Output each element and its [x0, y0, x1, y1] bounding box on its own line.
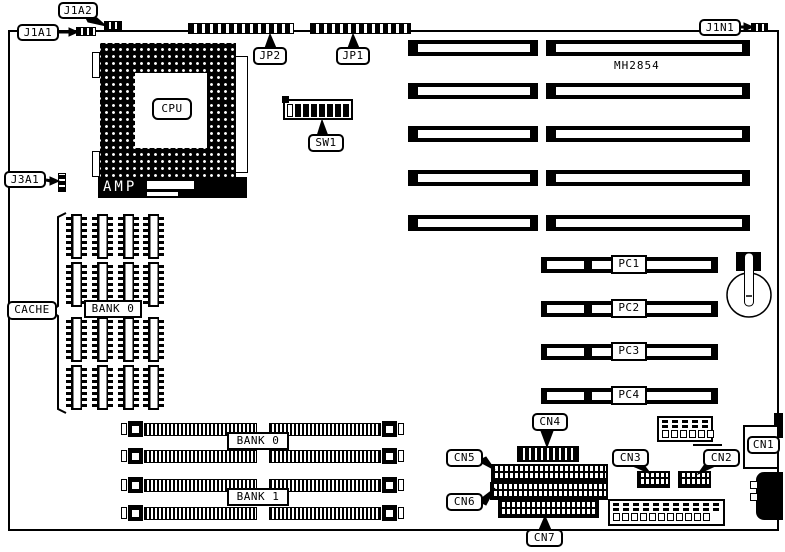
simm-contact-strip	[269, 450, 382, 463]
power-connector-large-pins-mid	[613, 508, 720, 511]
dip-switch-position	[295, 104, 301, 117]
simm-slot	[121, 448, 404, 464]
power-pin	[622, 513, 629, 521]
amp-chip-window-small	[147, 192, 178, 196]
chip-body	[71, 214, 82, 259]
isa-slot-inner	[418, 44, 530, 52]
cpu-tab-top	[92, 52, 100, 78]
isa-slot-inner	[556, 44, 742, 52]
isa-slot-right	[546, 215, 750, 231]
pci-slot-label: PC1	[611, 255, 647, 274]
sw1-dip-switch	[283, 99, 353, 120]
power-pin	[689, 430, 696, 438]
simm-latch-left	[128, 448, 143, 464]
chip-pins-right	[108, 214, 113, 259]
chip-pins-right	[82, 214, 87, 259]
dip-switch-position	[335, 104, 341, 117]
dip-switch-position	[311, 104, 317, 117]
dip-switch-position	[303, 104, 309, 117]
cn2-label: CN2	[703, 449, 740, 467]
cache-chip	[143, 262, 164, 307]
j1n1-label: J1N1	[699, 19, 741, 36]
power-pin	[640, 513, 647, 521]
cn4-label: CN4	[532, 413, 568, 431]
power-pin	[694, 513, 701, 521]
cache-chip	[143, 214, 164, 259]
cache-chip	[143, 317, 164, 362]
power-pin	[613, 513, 620, 521]
chip-pins-right	[108, 365, 113, 410]
chip-body	[71, 317, 82, 362]
j1a1-connector	[76, 27, 96, 36]
chip-body	[148, 214, 159, 259]
simm-latch-right	[382, 448, 397, 464]
jp1-pin-header	[310, 23, 411, 34]
chip-pins-right	[159, 214, 164, 259]
power-connector-small-pin-row	[662, 430, 708, 438]
cn4-connector	[517, 446, 579, 462]
simm-latch-right	[382, 477, 397, 493]
jp2-pin-header	[188, 23, 294, 34]
cn5-connector	[491, 464, 608, 482]
pci-slot-label: PC2	[611, 299, 647, 318]
simm-contact-strip	[144, 450, 257, 463]
simm-slot	[121, 505, 404, 521]
chip-body	[97, 365, 108, 410]
cache-chip	[118, 317, 139, 362]
simm-latch-left	[128, 421, 143, 437]
amp-chip-label: AMP	[103, 179, 137, 195]
cache-chip	[92, 317, 113, 362]
keyboard-din-connector	[756, 472, 783, 520]
power-pin	[658, 513, 665, 521]
chip-pins-right	[159, 317, 164, 362]
simm-bank1-label: BANK 1	[227, 488, 289, 506]
chip-body	[71, 262, 82, 307]
isa-slot-inner	[418, 219, 530, 227]
chip-pins-right	[82, 317, 87, 362]
amp-chip: AMP	[98, 177, 247, 198]
power-pin	[685, 513, 692, 521]
cache-chip	[92, 214, 113, 259]
isa-slot-inner	[556, 87, 742, 95]
keyboard-connector-pin-bottom	[750, 493, 758, 501]
isa-slot-left	[408, 40, 538, 56]
pci-slot: PC3	[541, 344, 718, 360]
cache-bank0-label: BANK 0	[84, 300, 142, 318]
power-connector-small-pins-mid	[662, 425, 708, 428]
isa-slot-left	[408, 170, 538, 186]
power-connector-small-pins-top	[662, 420, 708, 423]
simm-end-tab	[121, 450, 127, 462]
chip-body	[148, 317, 159, 362]
chip-pins-right	[134, 214, 139, 259]
cpu-label: CPU	[152, 98, 192, 120]
isa-slot-right	[546, 40, 750, 56]
j1n1-connector	[751, 23, 768, 32]
keyboard-connector-pin-top	[750, 481, 758, 489]
simm-center-key	[257, 450, 269, 463]
pci-slot: PC4	[541, 388, 718, 404]
isa-slot-inner	[418, 174, 530, 182]
isa-slot-left	[408, 215, 538, 231]
power-pin	[707, 430, 714, 438]
chip-body	[71, 365, 82, 410]
motherboard-diagram: CPU AMP J1A2 J1A1 J1N1 J3A1 JP2 JP1 SW1 …	[0, 0, 785, 552]
chip-pins-right	[159, 365, 164, 410]
cache-chip	[66, 214, 87, 259]
cn3-connector	[637, 471, 670, 488]
cn5-label: CN5	[446, 449, 483, 467]
simm-bank0-label: BANK 0	[227, 432, 289, 450]
isa-slot-inner	[556, 174, 742, 182]
isa-slot-inner	[418, 87, 530, 95]
pci-slot: PC1	[541, 257, 718, 273]
simm-contact-strip	[144, 507, 257, 520]
isa-slot-right	[546, 126, 750, 142]
sw1-label: SW1	[308, 134, 344, 152]
power-pin	[671, 430, 678, 438]
power-pin	[676, 513, 683, 521]
j1a1-label: J1A1	[17, 24, 59, 41]
cache-chip	[118, 365, 139, 410]
simm-end-tab	[398, 479, 404, 491]
simm-end-tab	[121, 423, 127, 435]
isa-slot-left	[408, 83, 538, 99]
j1a2-connector	[104, 21, 122, 30]
sw1-pin1-marker	[282, 96, 289, 103]
pci-slot-label: PC4	[611, 386, 647, 405]
dip-switch-position	[319, 104, 325, 117]
isa-slot-right	[546, 83, 750, 99]
cache-chip	[118, 214, 139, 259]
chip-pins-right	[108, 317, 113, 362]
simm-latch-right	[382, 421, 397, 437]
chip-body	[97, 214, 108, 259]
chip-pins-right	[134, 317, 139, 362]
pci-slot-divider	[584, 257, 592, 273]
cn3-label: CN3	[612, 449, 649, 467]
pci-slot-divider	[584, 344, 592, 360]
isa-slot-inner	[556, 219, 742, 227]
power-pin	[703, 513, 710, 521]
simm-end-tab	[121, 479, 127, 491]
chip-pins-right	[159, 262, 164, 307]
power-pin	[698, 430, 705, 438]
cn7-connector	[498, 500, 599, 518]
jp1-label: JP1	[336, 47, 370, 65]
simm-end-tab	[121, 507, 127, 519]
power-pin	[631, 513, 638, 521]
power-connector-large	[608, 499, 725, 526]
j1a2-label: J1A2	[58, 2, 98, 19]
power-connector-large-pin-row	[613, 513, 720, 521]
chip-body	[123, 214, 134, 259]
cn7-label: CN7	[526, 529, 563, 547]
jp2-label: JP2	[253, 47, 287, 65]
cache-chip	[143, 365, 164, 410]
pci-slot-label: PC3	[611, 342, 647, 361]
power-pin	[667, 513, 674, 521]
amp-chip-window	[147, 181, 194, 189]
chip-pins-right	[134, 365, 139, 410]
j3a1-label: J3A1	[4, 171, 46, 188]
pci-slot: PC2	[541, 301, 718, 317]
cache-chip	[66, 365, 87, 410]
pci-slot-divider	[584, 301, 592, 317]
power-pin	[662, 430, 669, 438]
power-connector-small	[657, 416, 713, 442]
chip-body	[148, 365, 159, 410]
simm-contact-strip	[269, 507, 382, 520]
dip-switch-position	[327, 104, 333, 117]
simm-end-tab	[398, 507, 404, 519]
power-pin	[680, 430, 687, 438]
simm-latch-left	[128, 477, 143, 493]
pci-slot-divider	[584, 388, 592, 404]
j3a1-connector	[58, 173, 66, 192]
dip-switch-position	[343, 104, 349, 117]
chip-pins-right	[82, 365, 87, 410]
chip-body	[123, 317, 134, 362]
isa-slot-inner	[418, 130, 530, 138]
simm-latch-right	[382, 505, 397, 521]
cn1-label: CN1	[747, 436, 780, 454]
simm-latch-left	[128, 505, 143, 521]
power-connector-large-pins-top	[613, 503, 720, 506]
power-pin	[649, 513, 656, 521]
simm-end-tab	[398, 450, 404, 462]
isa-slot-right	[546, 170, 750, 186]
cpu-side-strip	[235, 56, 248, 173]
cache-chip	[92, 365, 113, 410]
simm-center-key	[257, 507, 269, 520]
board-model-text: MH2854	[614, 59, 660, 72]
cache-chip	[66, 317, 87, 362]
chip-body	[97, 317, 108, 362]
isa-slot-inner	[556, 130, 742, 138]
cn6-label: CN6	[446, 493, 483, 511]
cn2-connector	[678, 471, 711, 488]
dip-switch-position	[287, 104, 293, 117]
cache-label: CACHE	[7, 301, 57, 320]
cn6-connector	[490, 482, 608, 500]
chip-body	[123, 365, 134, 410]
simm-end-tab	[398, 423, 404, 435]
isa-slot-left	[408, 126, 538, 142]
chip-body	[148, 262, 159, 307]
cpu-tab-bottom	[92, 151, 100, 177]
